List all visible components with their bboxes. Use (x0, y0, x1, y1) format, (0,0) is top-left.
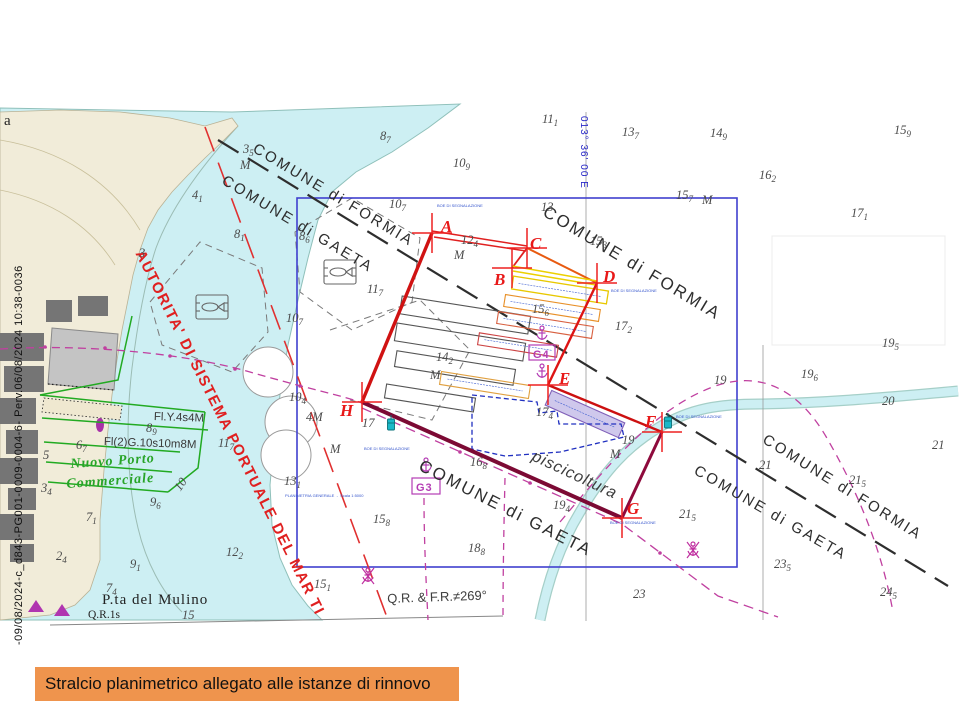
depth-sounding: 5 (43, 449, 49, 462)
polygon-vertex-label-A: A (441, 218, 452, 235)
depth-sounding: 171 (851, 207, 868, 222)
blank-patch (772, 236, 945, 345)
depth-sounding: 104 (289, 391, 306, 406)
depth-sounding: 215 (679, 508, 696, 523)
boe-label-f: BOE DI SEGNALAZIONE (676, 415, 722, 419)
signal-buoys (388, 413, 672, 430)
concession-cages (384, 276, 608, 412)
depth-sounding: M (454, 249, 464, 262)
depth-sounding: 142 (436, 351, 453, 366)
boe-label-a: BOE DI SEGNALAZIONE (437, 204, 483, 208)
planimetria-note: PLANIMETRIA GENERALE - Scala 1:5000 (285, 494, 363, 498)
depth-sounding: 21 (932, 439, 945, 452)
polygon-vertex-label-F: F (645, 413, 656, 430)
depth-sounding: 162 (759, 169, 776, 184)
depth-sounding: 245 (880, 586, 897, 601)
depth-sounding: 194 (553, 499, 570, 514)
depth-sounding: 117 (367, 283, 383, 298)
depth-sounding: 151 (314, 578, 331, 593)
depth-sounding: 117 (218, 437, 234, 452)
depth-sounding: 149 (710, 127, 727, 142)
depth-sounding: 235 (774, 558, 791, 573)
depth-sounding: 15 (182, 609, 195, 622)
boe-label-h: BOE DI SEGNALAZIONE (364, 447, 410, 451)
polygon-vertex-label-D: D (603, 268, 615, 285)
light-char-3: Q.R.1s (88, 610, 120, 622)
depth-sounding: M (240, 159, 250, 172)
depth-sounding: 131 (284, 475, 301, 490)
depth-sounding: 156 (532, 303, 549, 318)
caption-box: Stralcio planimetrico allegato alle ista… (35, 667, 459, 701)
depth-sounding: 124 (461, 234, 478, 249)
light-char-1: Fl.Y.4s4M (154, 412, 205, 425)
depth-sounding: M (702, 194, 712, 207)
depth-sounding: 188 (468, 542, 485, 557)
depth-sounding: 196 (801, 368, 818, 383)
no-anchoring-symbols (362, 542, 699, 584)
depth-sounding: 4M (306, 411, 323, 424)
depth-sounding: 107 (286, 312, 303, 327)
polygon-vertex-label-B: B (494, 271, 505, 288)
pta-del-mulino: P.ta del Mulino (102, 593, 208, 608)
depth-sounding: 153 (590, 235, 607, 250)
polygon-vertex-label-C: C (530, 235, 541, 252)
depth-sounding: M (330, 443, 340, 456)
depth-sounding: 21 (759, 459, 772, 472)
depth-sounding: 111 (542, 113, 558, 128)
depth-sounding: 20 (882, 395, 895, 408)
depth-sounding: 71 (86, 511, 97, 526)
depth-sounding: 81 (234, 228, 245, 243)
coast-placename-fragment: a (4, 114, 12, 129)
depth-sounding: 34 (41, 482, 52, 497)
depth-sounding: 87 (380, 130, 391, 145)
depth-sounding: 74 (106, 582, 117, 597)
nautical-chart-graphics (0, 0, 960, 720)
anchorage-g4: G4 (533, 350, 550, 361)
depth-sounding: 109 (453, 157, 470, 172)
depth-sounding: 3 (139, 247, 145, 260)
polygon-vertex-label-G: G (627, 500, 639, 517)
boe-label-d: BOE DI SEGNALAZIONE (611, 289, 657, 293)
depth-sounding: 107 (389, 198, 406, 213)
depth-sounding: 23 (633, 588, 646, 601)
depth-sounding: 122 (226, 546, 243, 561)
caption-text: Stralcio planimetrico allegato alle ista… (45, 674, 431, 694)
depth-sounding: 215 (849, 474, 866, 489)
polygon-vertex-label-E: E (559, 370, 570, 387)
depth-sounding: 168 (470, 456, 487, 471)
depth-sounding: M (430, 369, 440, 382)
depth-sounding: 89 (146, 422, 157, 437)
depth-sounding: 35 (243, 143, 254, 158)
depth-sounding: 159 (894, 124, 911, 139)
bearing-note: Q.R. & F.R.≠269° (387, 589, 487, 605)
depth-sounding: 19 (622, 434, 635, 447)
depth-sounding: 13 (541, 201, 554, 214)
depth-sounding: 157 (676, 189, 693, 204)
meridian-label: 013° 36' 00 E (578, 116, 588, 189)
depth-sounding: 137 (622, 126, 639, 141)
depth-sounding: 19 (714, 374, 727, 387)
anchorage-g3: G3 (416, 483, 433, 494)
depth-sounding: 158 (373, 513, 390, 528)
depth-sounding: 91 (130, 558, 141, 573)
municipal-boundary-line (218, 140, 948, 586)
depth-sounding: 24 (56, 550, 67, 565)
depth-sounding: 86 (299, 230, 310, 245)
polygon-vertex-label-H: H (340, 402, 353, 419)
depth-sounding: M (610, 448, 620, 461)
depth-sounding: 195 (882, 337, 899, 352)
depth-sounding: 172 (615, 320, 632, 335)
depth-sounding: 41 (192, 189, 203, 204)
boe-label-g: BOE DI SEGNALAZIONE (610, 521, 656, 525)
depth-sounding: 96 (150, 496, 161, 511)
depth-sounding: 174 (536, 406, 553, 421)
depth-sounding: 17 (362, 417, 375, 430)
chart-page: COMUNE di FORMIACOMUNE di GAETACOMUNE di… (0, 0, 960, 720)
protocol-reference-text: -09/08/2024-c_d843-PG001-0009-0004-6- Pe… (14, 265, 25, 645)
depth-sounding: 67 (76, 439, 87, 454)
